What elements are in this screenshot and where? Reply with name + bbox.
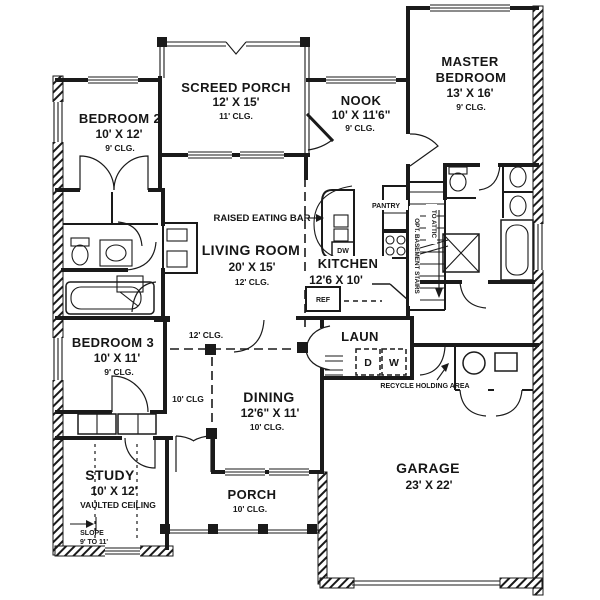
- window: [326, 76, 396, 84]
- room-ceiling-nook: 9' CLG.: [345, 123, 374, 133]
- entry-side-window: [325, 356, 343, 375]
- window: [88, 76, 138, 84]
- tub-inner: [71, 287, 141, 309]
- room-name-porch: PORCH: [228, 487, 277, 502]
- label-recycle-holding-area: RECYCLE HOLDING AREA: [380, 383, 469, 390]
- label-refrigerator: REF: [316, 297, 331, 304]
- room-ceiling-bedroom-2: 9' CLG.: [105, 143, 134, 153]
- label-pantry: PANTRY: [372, 203, 400, 210]
- porch-column: [258, 524, 268, 534]
- sink: [510, 196, 526, 216]
- window: [269, 468, 309, 476]
- island-sink: [334, 215, 348, 227]
- sink: [106, 245, 126, 261]
- room-name-dining: DINING: [243, 389, 294, 405]
- room-size-master: 13' X 16': [446, 86, 493, 100]
- window: [430, 4, 510, 12]
- room-name-bedroom-3: BEDROOM 3: [72, 335, 154, 350]
- room-size-nook: 10' X 11'6": [332, 108, 391, 122]
- room-size-screed-porch: 12' X 15': [212, 95, 259, 109]
- room-ceiling-study: VAULTED CEILING: [80, 500, 156, 510]
- recycle-bin-round: [463, 352, 485, 374]
- room-size-bedroom-3: 10' X 11': [94, 351, 141, 365]
- vanity: [100, 240, 132, 266]
- label-washer: W: [389, 357, 399, 369]
- label-12-clg: 12' CLG.: [189, 330, 223, 340]
- room-size-living: 20' X 15': [228, 260, 275, 274]
- room-name-garage: GARAGE: [396, 460, 460, 476]
- room-ceiling-screed-porch: 11' CLG.: [219, 111, 253, 121]
- room-name-nook: NOOK: [341, 93, 382, 108]
- room-size-bedroom-2: 10' X 12': [95, 127, 142, 141]
- label-dishwasher: DW: [337, 248, 349, 255]
- window: [225, 468, 265, 476]
- burner: [386, 247, 394, 255]
- media-builtin: [117, 223, 197, 306]
- angled-door-wall: [308, 115, 332, 140]
- recycle-bin-square: [495, 353, 517, 371]
- room-name-bedroom-2: BEDROOM 2: [79, 111, 161, 126]
- sink: [510, 167, 526, 187]
- column: [205, 344, 216, 355]
- screen-door: [226, 42, 246, 54]
- toilet: [72, 245, 88, 265]
- label-10-clg: 10' CLG: [172, 394, 204, 404]
- room-name-master-line2: BEDROOM: [436, 70, 507, 85]
- label-slope: SLOPE: [80, 530, 104, 537]
- master-bath-fixtures: [443, 167, 533, 280]
- label-opt-basement-stairs: OPT. BASEMENT STAIRS: [413, 218, 420, 293]
- floor-plan-drawing: SCREED PORCH 12' X 15' 11' CLG. BEDROOM …: [0, 0, 600, 600]
- label-slope-range: 9' TO 11': [80, 539, 108, 546]
- shower-x: [443, 234, 479, 272]
- window: [105, 544, 140, 558]
- room-size-study: 10' X 12': [90, 484, 137, 498]
- toilet: [450, 173, 466, 191]
- room-ceiling-master: 9' CLG.: [456, 102, 485, 112]
- room-ceiling-living: 12' CLG.: [235, 277, 269, 287]
- porch-column: [307, 524, 317, 534]
- room-size-dining: 12'6" X 11': [241, 406, 300, 420]
- burner: [397, 236, 405, 244]
- room-ceiling-dining: 10' CLG.: [250, 422, 284, 432]
- label-raised-eating-bar: RAISED EATING BAR: [214, 213, 311, 224]
- floor-plan-page: SCREED PORCH 12' X 15' 11' CLG. BEDROOM …: [0, 0, 600, 600]
- room-size-garage: 23' X 22': [405, 478, 452, 492]
- room-name-living: LIVING ROOM: [202, 242, 301, 258]
- room-ceiling-bedroom-3: 9' CLG.: [104, 367, 133, 377]
- room-name-laundry: LAUN: [341, 329, 379, 344]
- room-name-study: STUDY: [85, 467, 135, 483]
- island-sink: [334, 229, 348, 241]
- front-porch-structure: [160, 524, 320, 534]
- burner: [397, 247, 405, 255]
- window: [240, 151, 284, 159]
- porch-column: [160, 524, 170, 534]
- room-name-screed-porch: SCREED PORCH: [181, 80, 291, 95]
- window: [51, 102, 65, 142]
- room-ceiling-porch: 10' CLG.: [233, 504, 267, 514]
- porch-post: [300, 37, 310, 47]
- tub-inner: [506, 225, 528, 275]
- room-size-kitchen: 12'6 X 10': [309, 273, 363, 287]
- burner: [386, 236, 394, 244]
- window: [51, 338, 65, 380]
- porch-column: [208, 524, 218, 534]
- window: [188, 151, 232, 159]
- label-to-attic: TO ATTIC: [430, 210, 437, 239]
- room-name-kitchen: KITCHEN: [318, 256, 379, 271]
- porch-post: [157, 37, 167, 47]
- label-dryer: D: [364, 357, 372, 369]
- stairs: [406, 192, 448, 306]
- door-swings: [80, 115, 522, 472]
- garage-door: [352, 581, 500, 585]
- room-name-master-line1: MASTER: [441, 54, 498, 69]
